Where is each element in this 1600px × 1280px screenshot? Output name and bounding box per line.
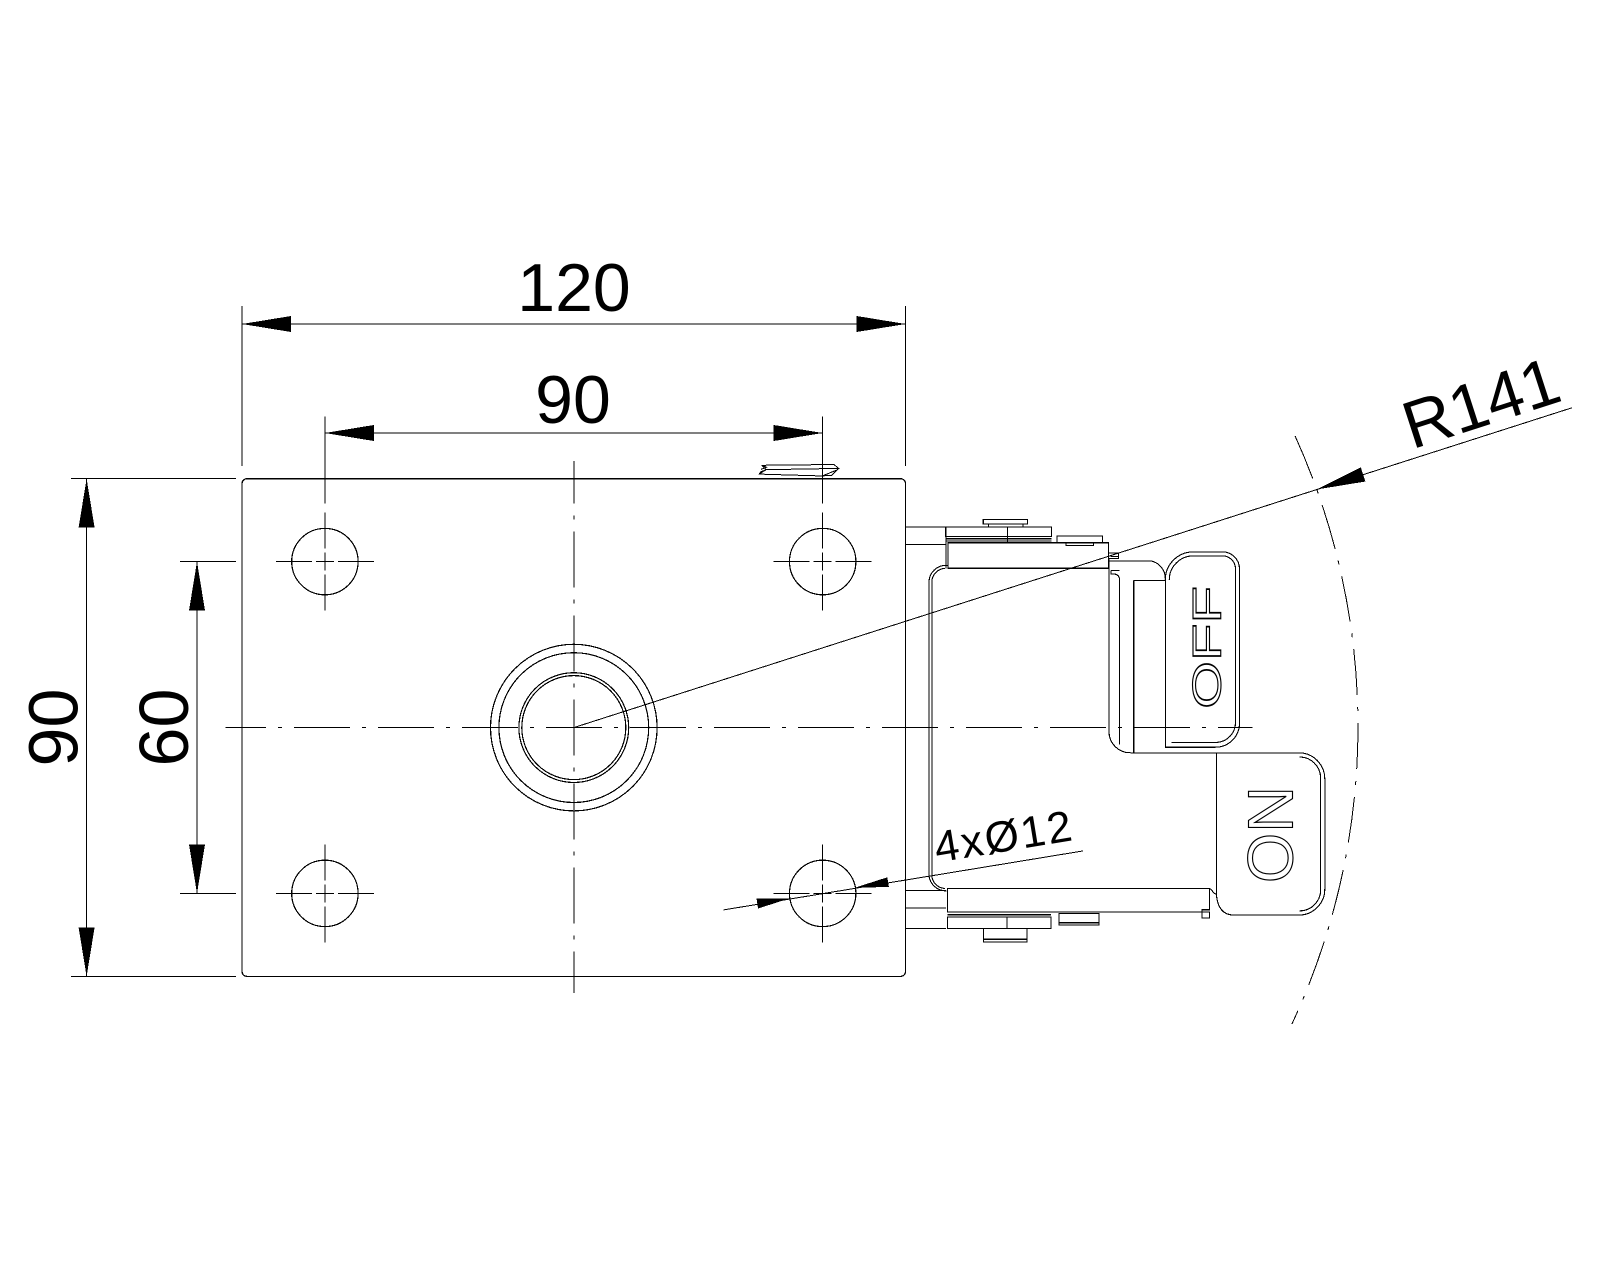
svg-text:90: 90 [535,362,611,438]
svg-text:ON: ON [1234,786,1306,883]
svg-text:60: 60 [125,689,203,767]
svg-text:90: 90 [15,689,93,767]
svg-text:120: 120 [517,250,630,326]
svg-text:OFF: OFF [1186,586,1230,709]
